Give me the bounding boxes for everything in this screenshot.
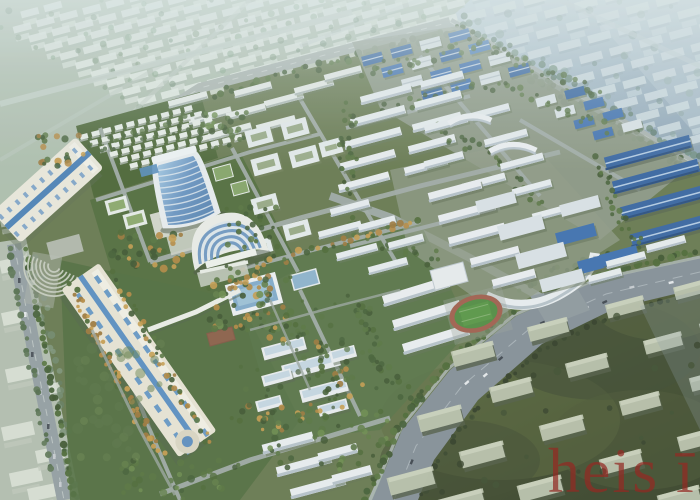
svg-text:ī: ī xyxy=(675,435,695,500)
svg-text:heis: heis xyxy=(548,435,659,500)
